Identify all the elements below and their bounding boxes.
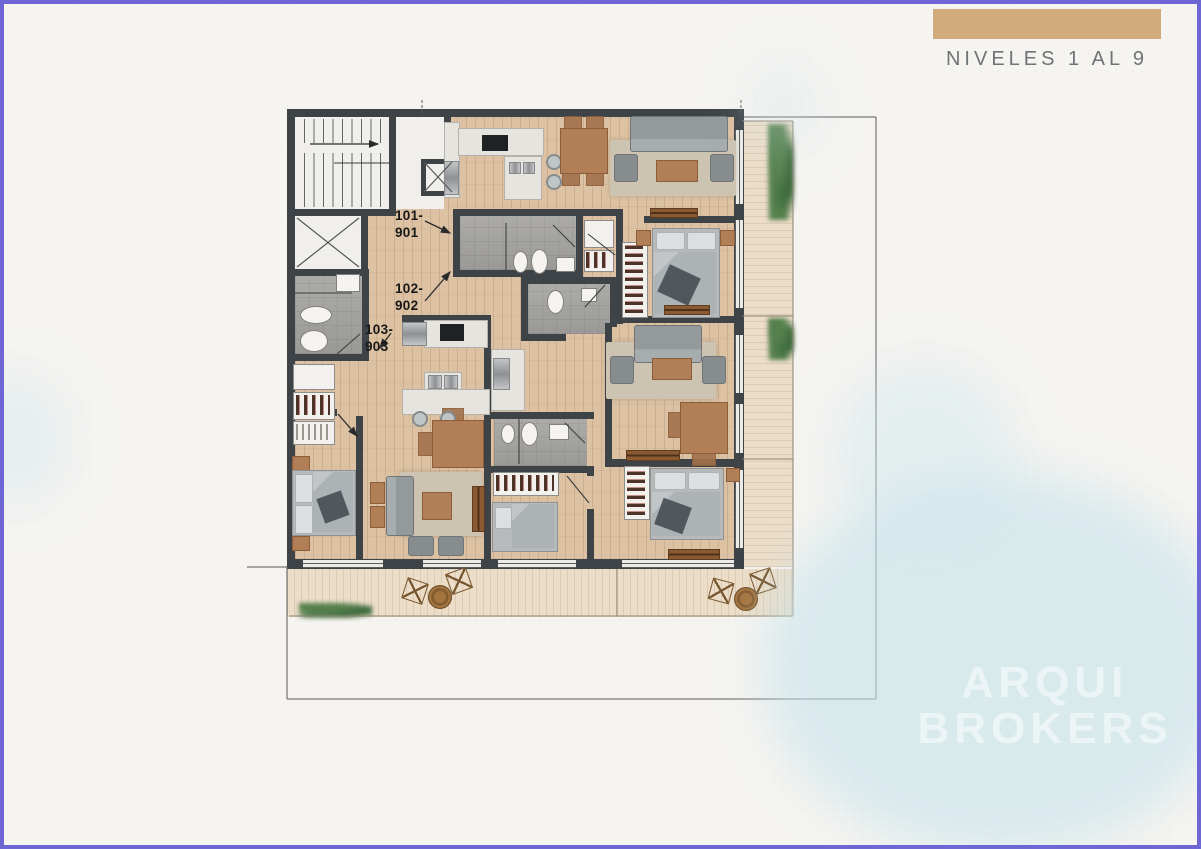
washbasin-icon [556,257,575,272]
wall-bath3-bottom [287,354,369,361]
bathroom-2-floor [528,284,610,334]
wall-under-stairs [287,209,396,216]
unit-label-103-903: 103- 903 [365,321,393,355]
outdoor-table [428,585,452,609]
unit-label-line: 103- [365,321,393,338]
dining-chair [562,172,580,186]
unit-label-line: 901 [395,224,423,241]
closet-shelf [584,220,614,248]
planter-plants [768,318,794,360]
armchair [610,356,634,384]
sink-icon [444,375,458,389]
console-table [626,450,680,461]
watercolor-wash [764,474,1201,849]
pillow [654,472,686,490]
stair-treads-lower [304,153,389,207]
toilet-icon [531,249,548,274]
sink-icon [509,162,521,174]
unit-label-101-901: 101- 901 [395,207,423,241]
armchair [614,154,638,182]
arquibrokers-watermark: ARQUI BROKERS [899,660,1191,752]
window [498,560,576,568]
sink-icon [523,162,535,174]
toilet-icon [521,422,538,446]
hanging-clothes [586,252,610,268]
hanging-clothes [496,475,554,491]
washbasin-icon [549,424,569,440]
watercolor-wash [834,364,1014,544]
window [735,335,743,393]
wall-bath4-top [487,412,594,419]
bidet-icon [513,251,528,273]
wall-stair-east [389,109,396,216]
dining-table [560,128,608,174]
sofa [630,116,728,152]
watermark-line: BROKERS [899,706,1191,752]
window [735,404,743,453]
sink-icon [428,375,442,389]
wall-bath2-top [521,277,617,284]
lobby-floor [295,216,361,269]
wall-bedroom3-east [356,416,363,559]
bar-stool [412,411,428,427]
armchair [702,356,726,384]
watermark-line: ARQUI [899,660,1191,706]
wall-unit-divider [484,317,491,559]
dining-table [680,402,728,454]
watercolor-wash [0,374,69,504]
hanging-clothes [627,469,645,515]
sofa [386,476,414,536]
pillow [295,505,313,534]
pillow [687,232,716,250]
unit-label-line: 101- [395,207,423,224]
nightstand [726,468,740,482]
shelf-lines [296,424,330,440]
pillow [495,507,512,529]
nightstand [292,456,310,471]
planter-plants [768,124,794,220]
bidet-icon [300,306,332,324]
dining-table [432,420,484,468]
console-table [650,208,698,218]
pillow [656,232,685,250]
page-title: NIVELES 1 AL 9 [909,48,1185,71]
wall-bath2-east [610,277,617,327]
unit-label-102-902: 102- 902 [395,280,423,314]
stair-treads-upper [304,119,389,143]
toilet-icon [300,330,328,352]
planter-plants [299,603,372,618]
side-table [370,482,385,504]
armchair [438,536,464,556]
unit-label-line: 902 [395,297,423,314]
window [735,220,743,308]
wall-midroom-east-b [587,509,594,566]
nightstand [292,536,310,551]
toilet-icon [547,290,564,314]
coffee-table [422,492,452,520]
window [735,130,743,204]
bed-blanket [512,504,554,548]
wall-bath1-top [453,209,616,216]
bar-stool [546,174,562,190]
cooktop-icon [482,135,508,151]
pillow [688,472,720,490]
unit-label-line: 102- [395,280,423,297]
title-color-swatch [933,9,1161,39]
dining-chair [586,172,604,186]
washbasin-icon [581,288,597,302]
dining-chair [692,452,716,466]
bidet-icon [501,424,515,444]
pillow [295,474,313,503]
nightstand [636,230,651,246]
presentation-page: 101- 901 102- 902 103- 903 NIVELES 1 AL … [0,0,1201,849]
refrigerator-icon [444,161,459,195]
bedroom-bench [668,549,720,560]
coffee-table [656,160,698,182]
armchair [710,154,734,182]
dining-chair [418,432,433,456]
bedroom-bench [664,305,710,315]
side-table [370,506,385,528]
oven-icon [493,358,510,390]
hanging-clothes [296,395,330,415]
closet-shelf [293,364,335,390]
armchair [408,536,434,556]
unit-label-line: 903 [365,338,393,355]
window [423,560,481,568]
washbasin-icon [336,274,360,292]
refrigerator-icon [402,322,427,346]
wall-bath2-west [521,277,528,341]
nightstand [720,230,735,246]
coffee-table [652,358,692,380]
wall-bath2-bottom [521,334,566,341]
wall-bath1-east [576,216,583,277]
console-table [472,486,485,532]
hanging-clothes [625,245,643,313]
window [303,560,383,568]
wall-lobby-east [361,216,368,276]
window [622,560,734,568]
wall-bath1-west [453,216,460,276]
cooktop-icon [440,324,464,341]
